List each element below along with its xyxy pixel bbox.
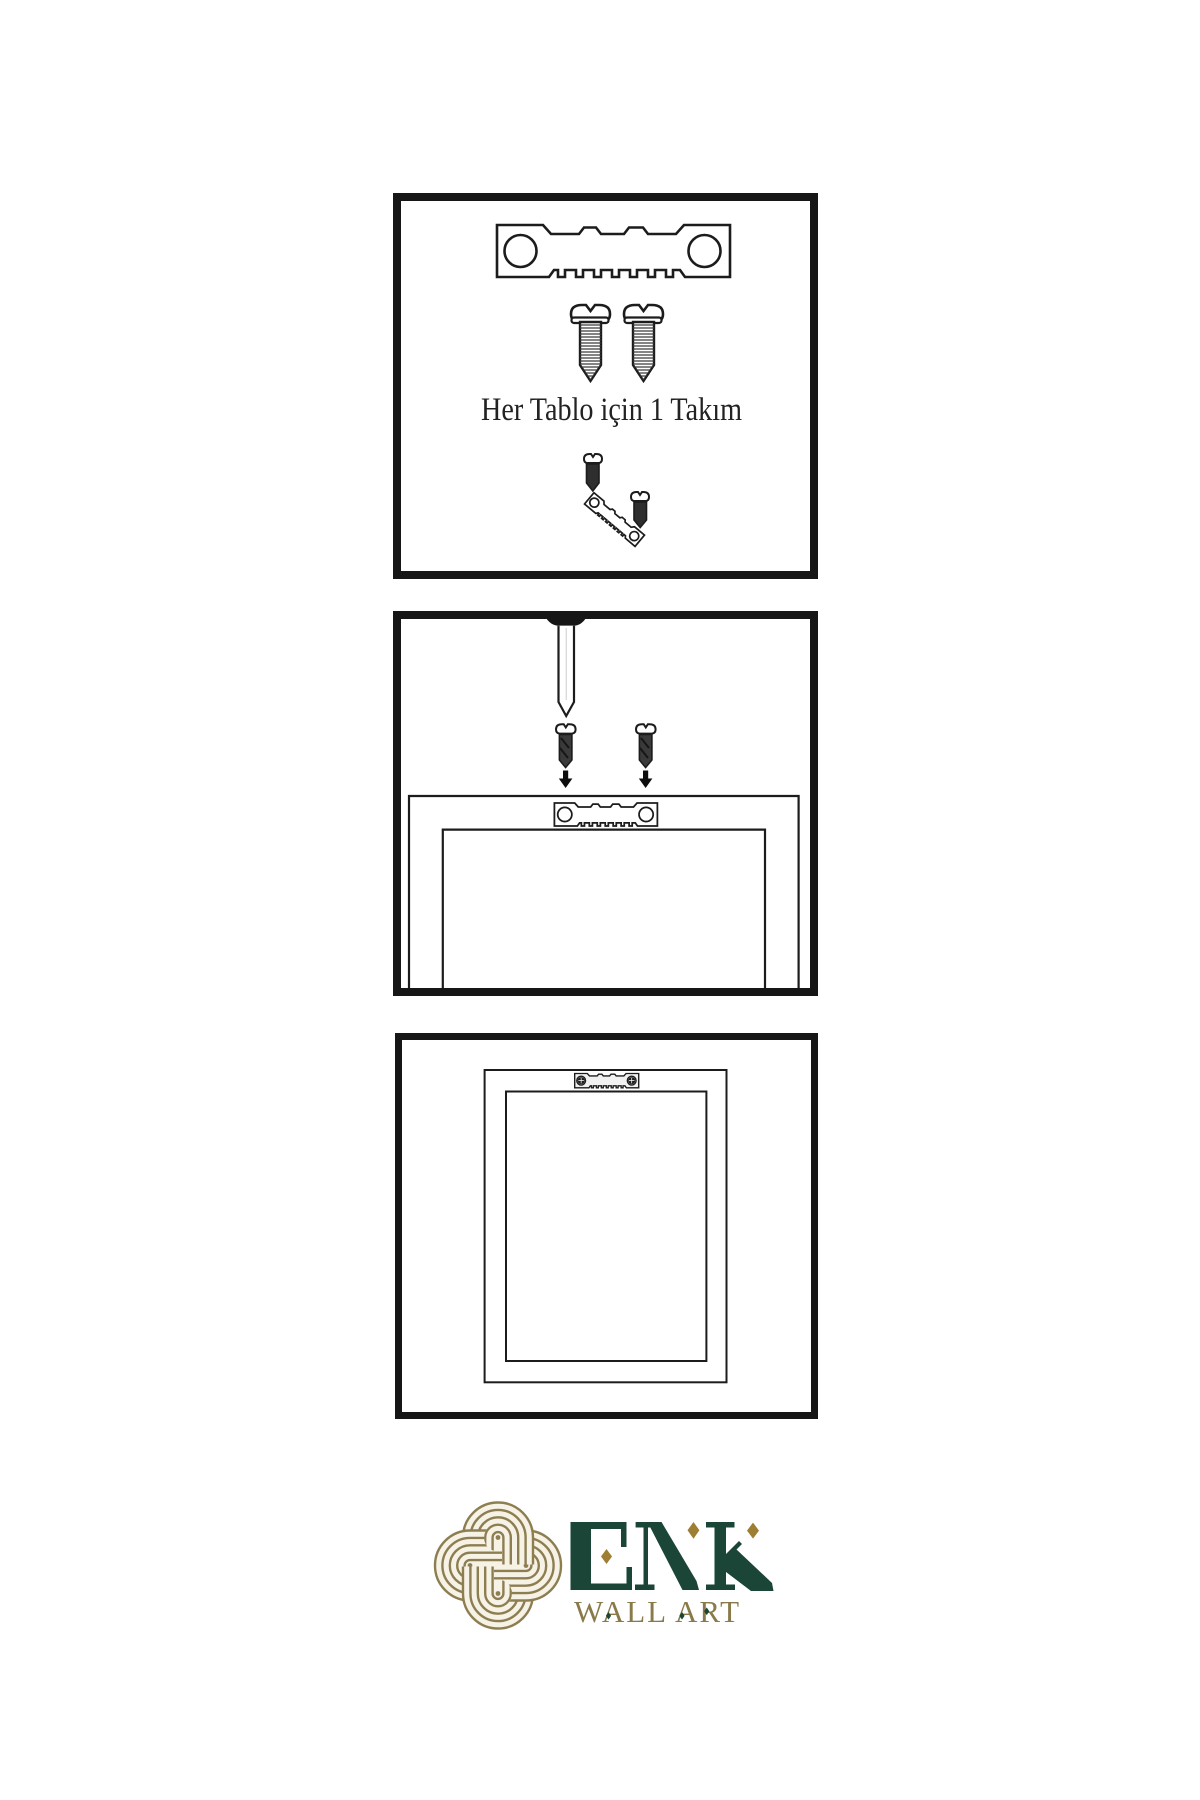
svg-text:Her Tablo için 1 Takım: Her Tablo için 1 Takım [481,392,742,428]
svg-text:WALL ART: WALL ART [574,1594,741,1629]
